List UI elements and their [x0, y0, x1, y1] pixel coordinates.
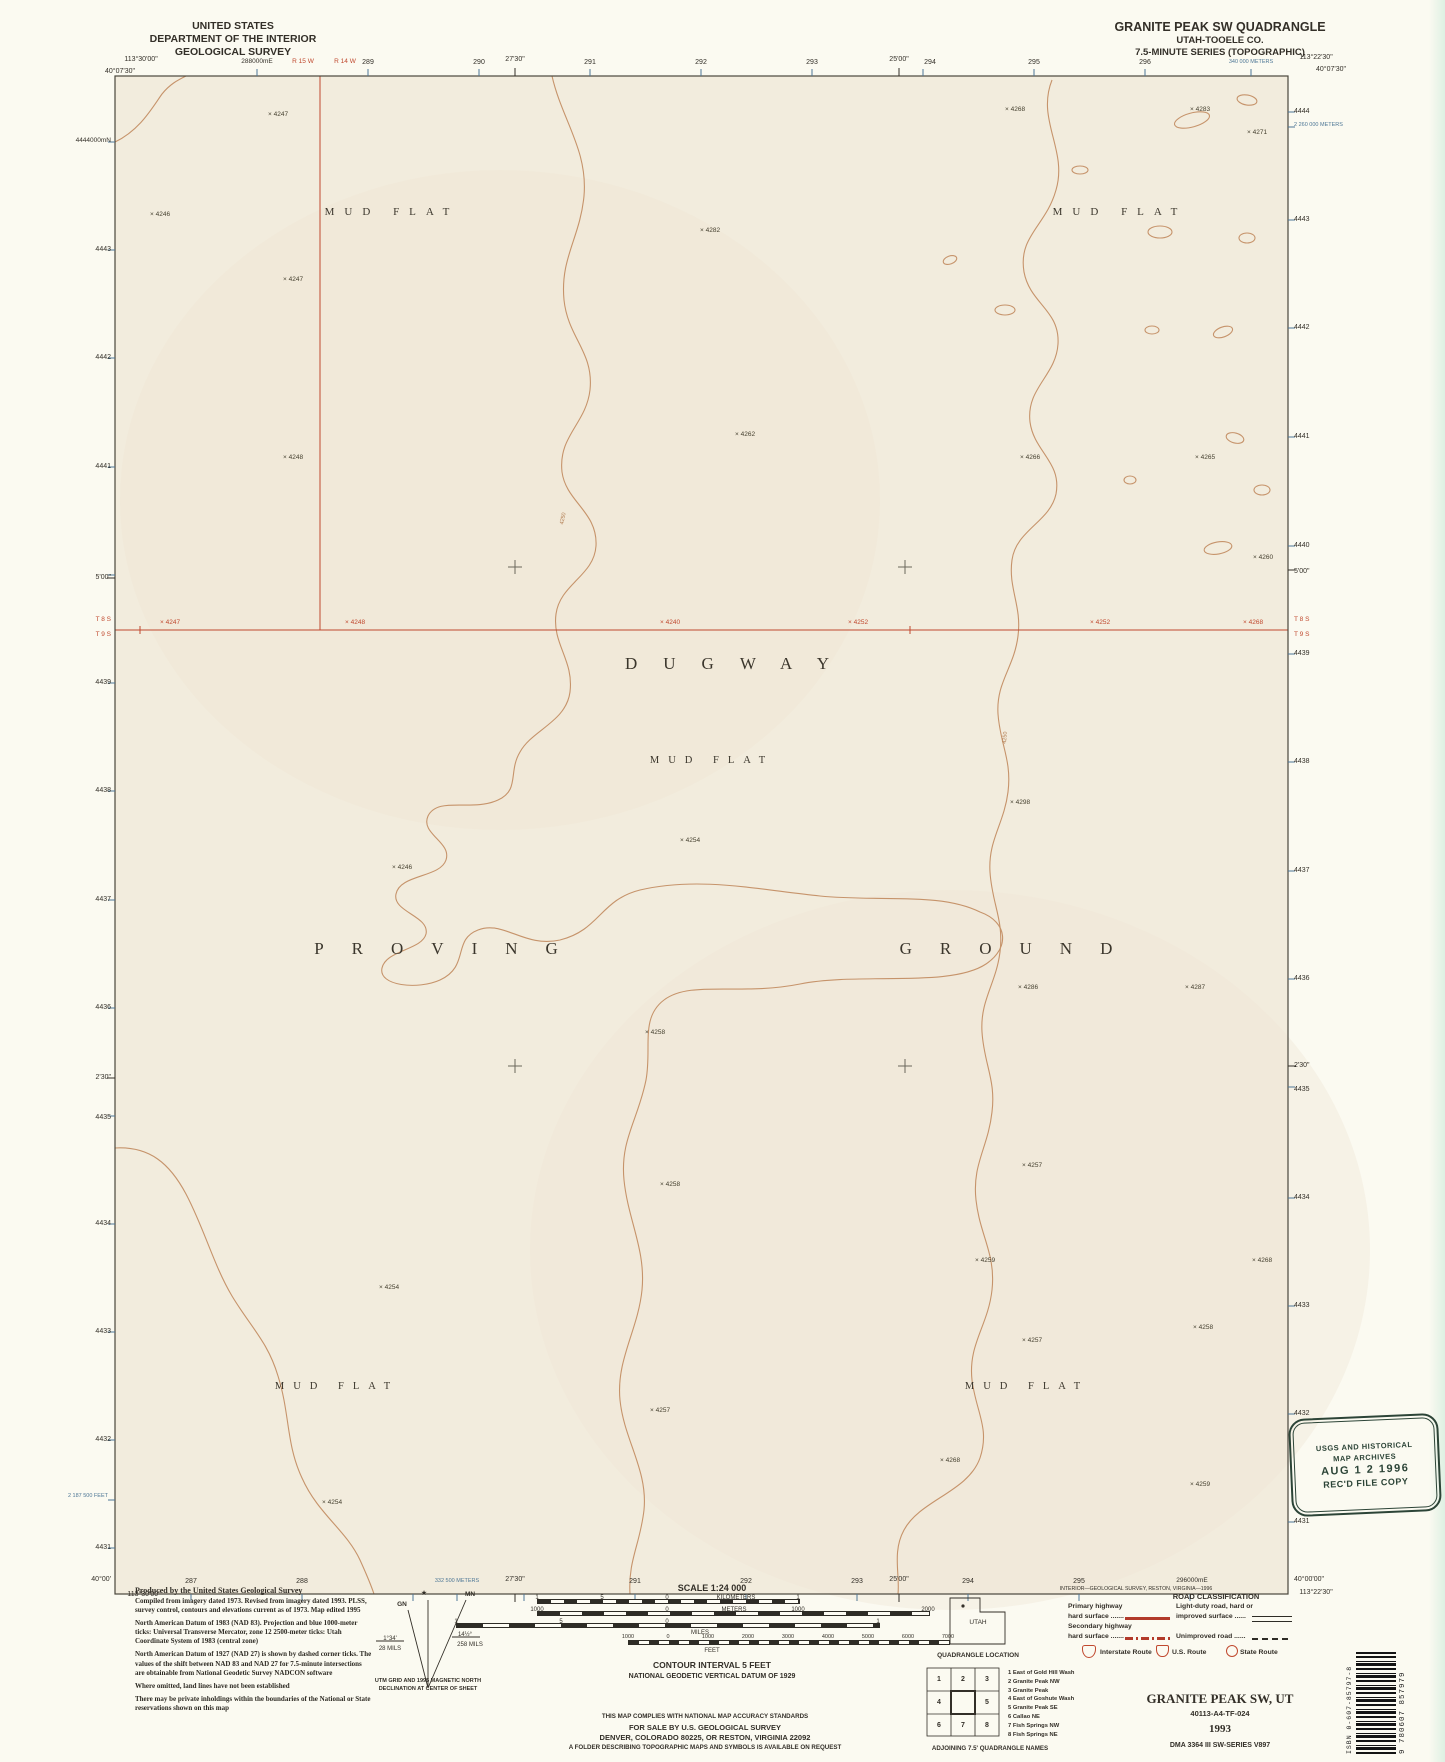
margin-label: T 9 S [96, 632, 111, 639]
adjoining-quad-number: 5 [985, 1699, 989, 1706]
margin-label: 290 [473, 59, 485, 66]
isbn-text: ISBN 0-607-85797-8 [1346, 1652, 1353, 1754]
place-label: MUD FLAT [275, 1382, 399, 1393]
scalebar-feet [628, 1640, 950, 1645]
agency-header: UNITED STATES DEPARTMENT OF THE INTERIOR… [108, 20, 358, 58]
adjoining-quad-name: 6 Callao NE [1008, 1715, 1040, 1721]
margin-label: 40°00'00" [1294, 1576, 1324, 1583]
margin-label: 40°07'30" [1316, 66, 1346, 73]
legend-label: 0 [665, 1595, 668, 1601]
legend-label: UTM GRID AND 1995 MAGNETIC NORTH [375, 1679, 481, 1685]
spot-elevation: × 4262 [735, 432, 755, 439]
quad-location-dot [961, 1604, 964, 1607]
margin-label: 27'30" [505, 1576, 524, 1583]
margin-label: 4434 [1294, 1194, 1310, 1201]
margin-label: 113°30'00" [127, 1591, 160, 1598]
spot-elevation: × 4282 [700, 228, 720, 235]
stamp-inner: USGS AND HISTORICAL MAP ARCHIVES AUG 1 2… [1292, 1417, 1438, 1513]
spot-elevation: × 4258 [645, 1030, 665, 1037]
margin-label: 4432 [95, 1436, 111, 1443]
spot-elevation: × 4283 [1190, 107, 1210, 114]
margin-label: 4444 [1294, 108, 1310, 115]
place-label: MUD FLAT [1053, 207, 1188, 218]
margin-label: 5'00" [1294, 568, 1310, 575]
spot-elevation: × 4254 [322, 1500, 342, 1507]
spot-elevation: × 4258 [1193, 1325, 1213, 1332]
adjoining-quad-number: 4 [937, 1699, 941, 1706]
margin-label: 4437 [95, 896, 111, 903]
margin-label: 4443 [1294, 216, 1310, 223]
legend-label: 14½° [458, 1632, 472, 1638]
spot-elevation: × 4257 [1022, 1163, 1042, 1170]
legend-label: 5000 [862, 1635, 874, 1641]
adjoining-quad-name: 1 East of Gold Hill Wash [1008, 1671, 1074, 1677]
legend-label: CONTOUR INTERVAL 5 FEET [653, 1661, 771, 1670]
legend-label: ROAD CLASSIFICATION [1173, 1593, 1260, 1601]
spot-elevation: × 4248 [283, 455, 303, 462]
isbn-barcode: ISBN 0-607-85797-8 9 780607 857979 [1346, 1652, 1432, 1754]
legend-label: 1993 [1209, 1724, 1231, 1735]
legend-label: 3000 [782, 1635, 794, 1641]
legend-label: 0 [665, 1607, 668, 1613]
legend-label: THIS MAP COMPLIES WITH NATIONAL MAP ACCU… [602, 1714, 808, 1720]
margin-label: 4433 [1294, 1302, 1310, 1309]
legend-label: 1 [454, 1619, 457, 1625]
legend-label: 1000 [791, 1607, 804, 1613]
margin-label: 4433 [95, 1328, 111, 1335]
legend-label: UTAH [969, 1620, 986, 1627]
spot-elevation: × 4257 [650, 1408, 670, 1415]
quadrangle-title: GRANITE PEAK SW QUADRANGLE [1040, 20, 1400, 35]
red-spot-elevation: × 4252 [848, 620, 868, 627]
adjoining-quad-name: 3 Granite Peak [1008, 1689, 1048, 1695]
legend-label: 28 MILS [379, 1646, 401, 1652]
margin-label: 4440 [1294, 542, 1310, 549]
adjoining-quad-name: 2 Granite Peak NW [1008, 1680, 1060, 1686]
margin-label: 113°30'00" [124, 56, 157, 63]
spot-elevation: × 4246 [392, 865, 412, 872]
margin-label: 40°07'30" [105, 68, 135, 75]
legend-label: QUADRANGLE LOCATION [937, 1653, 1019, 1660]
contour-elevation-label: 4250 [1003, 731, 1010, 744]
adjoining-quad-name: 4 East of Goshute Wash [1008, 1697, 1074, 1703]
legend-label: 7000 [942, 1635, 954, 1641]
legend-label: Interstate Route [1100, 1650, 1152, 1657]
margin-label: 4436 [1294, 975, 1310, 982]
legend-label: Unimproved road ...... [1176, 1634, 1246, 1641]
legend-label: MN [465, 1592, 475, 1599]
margin-label: 332 500 METERS [435, 1579, 479, 1585]
legend-label: State Route [1240, 1650, 1278, 1657]
margin-label: 288 [296, 1578, 308, 1585]
margin-label: 289 [362, 59, 374, 66]
spot-elevation: × 4271 [1247, 130, 1267, 137]
barcode-bars [1356, 1652, 1396, 1754]
red-spot-elevation: × 4252 [1090, 620, 1110, 627]
center-quad-cell [951, 1691, 975, 1714]
archive-stamp: USGS AND HISTORICAL MAP ARCHIVES AUG 1 2… [1288, 1413, 1442, 1517]
spot-elevation: × 4287 [1185, 985, 1205, 992]
spot-elevation: × 4298 [1010, 800, 1030, 807]
legend-label: 5 [559, 1619, 562, 1625]
secondary-highway-sample [1125, 1637, 1170, 1640]
margin-label: 40°00' [91, 1576, 111, 1583]
legend-label: U.S. Route [1172, 1650, 1206, 1657]
margin-label: 4439 [1294, 650, 1310, 657]
light-duty-road-sample [1252, 1616, 1292, 1622]
spot-elevation: × 4268 [1252, 1258, 1272, 1265]
legend-label: GRANITE PEAK SW, UT [1147, 1692, 1294, 1705]
place-label: GROUND [900, 940, 1141, 957]
spot-elevation: × 4286 [1018, 985, 1038, 992]
margin-label: 2'30" [95, 1074, 111, 1081]
terrain-tint [530, 890, 1370, 1610]
legend-label: 6000 [902, 1635, 914, 1641]
agency-line: UNITED STATES [108, 20, 358, 33]
adjoining-quad-name: 5 Granite Peak SE [1008, 1706, 1058, 1712]
margin-label: 4438 [1294, 758, 1310, 765]
margin-label: 2 260 000 METERS [1294, 123, 1343, 129]
spot-elevation: × 4259 [975, 1258, 995, 1265]
adjoining-quad-number: 3 [985, 1676, 989, 1683]
margin-label: 2 187 500 FEET [68, 1494, 108, 1500]
legend-label: METERS [721, 1607, 746, 1613]
legend-label: KILOMETERS [717, 1595, 756, 1601]
legend-label: 1 [796, 1595, 799, 1601]
legend-label: 2000 [921, 1607, 934, 1613]
legend-label: 1000 [530, 1607, 543, 1613]
legend-label: 4000 [822, 1635, 834, 1641]
legend-label: SCALE 1:24 000 [678, 1584, 747, 1593]
legend-label: 1 [876, 1619, 879, 1625]
spot-elevation: × 4265 [1195, 455, 1215, 462]
margin-label: 291 [629, 1578, 641, 1585]
legend-label: Light-duty road, hard or [1176, 1604, 1253, 1611]
primary-highway-sample [1125, 1617, 1170, 1620]
credits-paragraph: Compiled from imagery dated 1973. Revise… [135, 1597, 373, 1615]
legend-label: NATIONAL GEODETIC VERTICAL DATUM OF 1929 [629, 1673, 796, 1680]
margin-label: 27'30" [505, 56, 524, 63]
margin-label: 4441 [95, 463, 111, 470]
legend-label: 0 [666, 1635, 669, 1641]
margin-label: 293 [806, 59, 818, 66]
adjoining-quad-number: 1 [937, 1676, 941, 1683]
place-label: MUD FLAT [325, 207, 460, 218]
legend-label: DECLINATION AT CENTER OF SHEET [379, 1687, 478, 1693]
margin-label: 4436 [95, 1004, 111, 1011]
margin-label: 4431 [1294, 1518, 1310, 1525]
margin-label: 4435 [95, 1114, 111, 1121]
legend-label: 40113-A4-TF-024 [1190, 1710, 1249, 1718]
margin-label: 295 [1073, 1578, 1085, 1585]
legend-label: 1°34' [383, 1636, 397, 1642]
margin-label: 4434 [95, 1220, 111, 1227]
barcode-number: 9 780607 857979 [1399, 1652, 1407, 1754]
spot-elevation: × 4247 [268, 112, 288, 119]
map-sheet: UNITED STATES DEPARTMENT OF THE INTERIOR… [0, 0, 1445, 1762]
legend-label: 0 [665, 1619, 668, 1625]
margin-label: 4438 [95, 787, 111, 794]
margin-label: 287 [185, 1578, 197, 1585]
margin-label: T 8 S [96, 617, 111, 624]
spot-elevation: × 4268 [1005, 107, 1025, 114]
legend-label: ★ [421, 1590, 427, 1597]
margin-label: 113°22'30" [1299, 1589, 1332, 1596]
legend-label: 1 [535, 1595, 538, 1601]
legend-label: hard surface ....... [1068, 1634, 1124, 1641]
quadrangle-county: UTAH-TOOELE CO. [1040, 35, 1400, 47]
margin-label: 288000mE [241, 59, 272, 66]
legend-label: 1000 [622, 1635, 634, 1641]
legend-label: Primary highway [1068, 1604, 1122, 1611]
quadrangle-header: GRANITE PEAK SW QUADRANGLE UTAH-TOOELE C… [1040, 20, 1400, 58]
margin-label: 4439 [95, 679, 111, 686]
legend-label: ADJOINING 7.5' QUADRANGLE NAMES [932, 1746, 1048, 1752]
quadrangle-series: 7.5-MINUTE SERIES (TOPOGRAPHIC) [1040, 47, 1400, 59]
legend-label: Secondary highway [1068, 1624, 1132, 1631]
legend-label: GN [397, 1602, 407, 1609]
credits-paragraph: North American Datum of 1927 (NAD 27) is… [135, 1650, 373, 1677]
margin-label: 295 [1028, 59, 1040, 66]
margin-label: R 14 W [334, 59, 356, 66]
place-label: MUD FLAT [650, 756, 774, 767]
margin-label: 296 [1139, 59, 1151, 66]
legend-label: 1000 [702, 1635, 714, 1641]
credits-paragraph: There may be private inholdings within t… [135, 1695, 373, 1713]
red-spot-elevation: × 4248 [345, 620, 365, 627]
red-spot-elevation: × 4247 [160, 620, 180, 627]
margin-label: 4442 [1294, 324, 1310, 331]
margin-label: 5'00" [95, 574, 111, 581]
place-label: DUGWAY [625, 655, 855, 672]
legend-label: A FOLDER DESCRIBING TOPOGRAPHIC MAPS AND… [569, 1745, 842, 1751]
margin-label: 25'00" [889, 56, 908, 63]
legend-label: FEET [704, 1648, 719, 1654]
topo-map-canvas [0, 0, 1445, 1762]
legend-label: 2000 [742, 1635, 754, 1641]
margin-label: T 9 S [1294, 632, 1309, 639]
credits-paragraph: North American Datum of 1983 (NAD 83). P… [135, 1619, 373, 1646]
margin-label: 4432 [1294, 1410, 1310, 1417]
place-label: MUD FLAT [965, 1382, 1089, 1393]
margin-label: 4442 [95, 354, 111, 361]
margin-label: 4431 [95, 1544, 111, 1551]
margin-label: 2'30" [1294, 1062, 1310, 1069]
margin-label: 296000mE [1176, 1578, 1207, 1585]
margin-label: R 15 W [292, 59, 314, 66]
spot-elevation: × 4254 [379, 1285, 399, 1292]
adjoining-quad-name: 8 Fish Springs NE [1008, 1733, 1058, 1739]
margin-label: 294 [924, 59, 936, 66]
red-spot-elevation: × 4268 [1243, 620, 1263, 627]
margin-label: 4441 [1294, 433, 1310, 440]
adjoining-quad-name: 7 Fish Springs NW [1008, 1724, 1059, 1730]
adjoining-quad-number: 8 [985, 1722, 989, 1729]
spot-elevation: × 4246 [150, 212, 170, 219]
adjoining-quad-number: 2 [961, 1676, 965, 1683]
place-label: PROVING [314, 940, 586, 957]
margin-label: 4435 [1294, 1086, 1310, 1093]
legend-label: 5 [600, 1595, 603, 1601]
legend-label: DMA 3364 III SW-SERIES V897 [1170, 1742, 1270, 1749]
margin-label: 292 [695, 59, 707, 66]
spot-elevation: × 4266 [1020, 455, 1040, 462]
margin-label: 4443 [95, 246, 111, 253]
legend-label: FOR SALE BY U.S. GEOLOGICAL SURVEY [629, 1724, 781, 1732]
margin-label: 340 000 METERS [1229, 60, 1273, 66]
margin-label: 25'00" [889, 1576, 908, 1583]
adjoining-quad-number: 6 [937, 1722, 941, 1729]
margin-label: 4437 [1294, 867, 1310, 874]
spot-elevation: × 4259 [1190, 1482, 1210, 1489]
spot-elevation: × 4254 [680, 838, 700, 845]
margin-label: 291 [584, 59, 596, 66]
legend-label: improved surface ...... [1176, 1614, 1246, 1621]
credits-block: Compiled from imagery dated 1973. Revise… [135, 1597, 373, 1717]
spot-elevation: × 4257 [1022, 1338, 1042, 1345]
adjoining-quad-number: 7 [961, 1722, 965, 1729]
red-spot-elevation: × 4240 [660, 620, 680, 627]
agency-line: DEPARTMENT OF THE INTERIOR [108, 33, 358, 46]
state-route-circle-icon [1226, 1645, 1238, 1657]
margin-label: T 8 S [1294, 617, 1309, 624]
legend-label: DENVER, COLORADO 80225, OR RESTON, VIRGI… [600, 1734, 811, 1742]
spot-elevation: × 4260 [1253, 555, 1273, 562]
legend-label: 258 MILS [457, 1642, 483, 1648]
spot-elevation: × 4258 [660, 1182, 680, 1189]
margin-label: 294 [962, 1578, 974, 1585]
legend-label: hard surface ....... [1068, 1614, 1124, 1621]
margin-label: 4444000mN [76, 138, 111, 145]
credits-paragraph: Where omitted, land lines have not been … [135, 1682, 373, 1691]
spot-elevation: × 4247 [283, 277, 303, 284]
unimproved-road-sample [1252, 1638, 1292, 1640]
spot-elevation: × 4268 [940, 1458, 960, 1465]
terrain-tint [120, 170, 880, 830]
margin-label: 113°22'30" [1299, 54, 1332, 61]
margin-label: 293 [851, 1578, 863, 1585]
